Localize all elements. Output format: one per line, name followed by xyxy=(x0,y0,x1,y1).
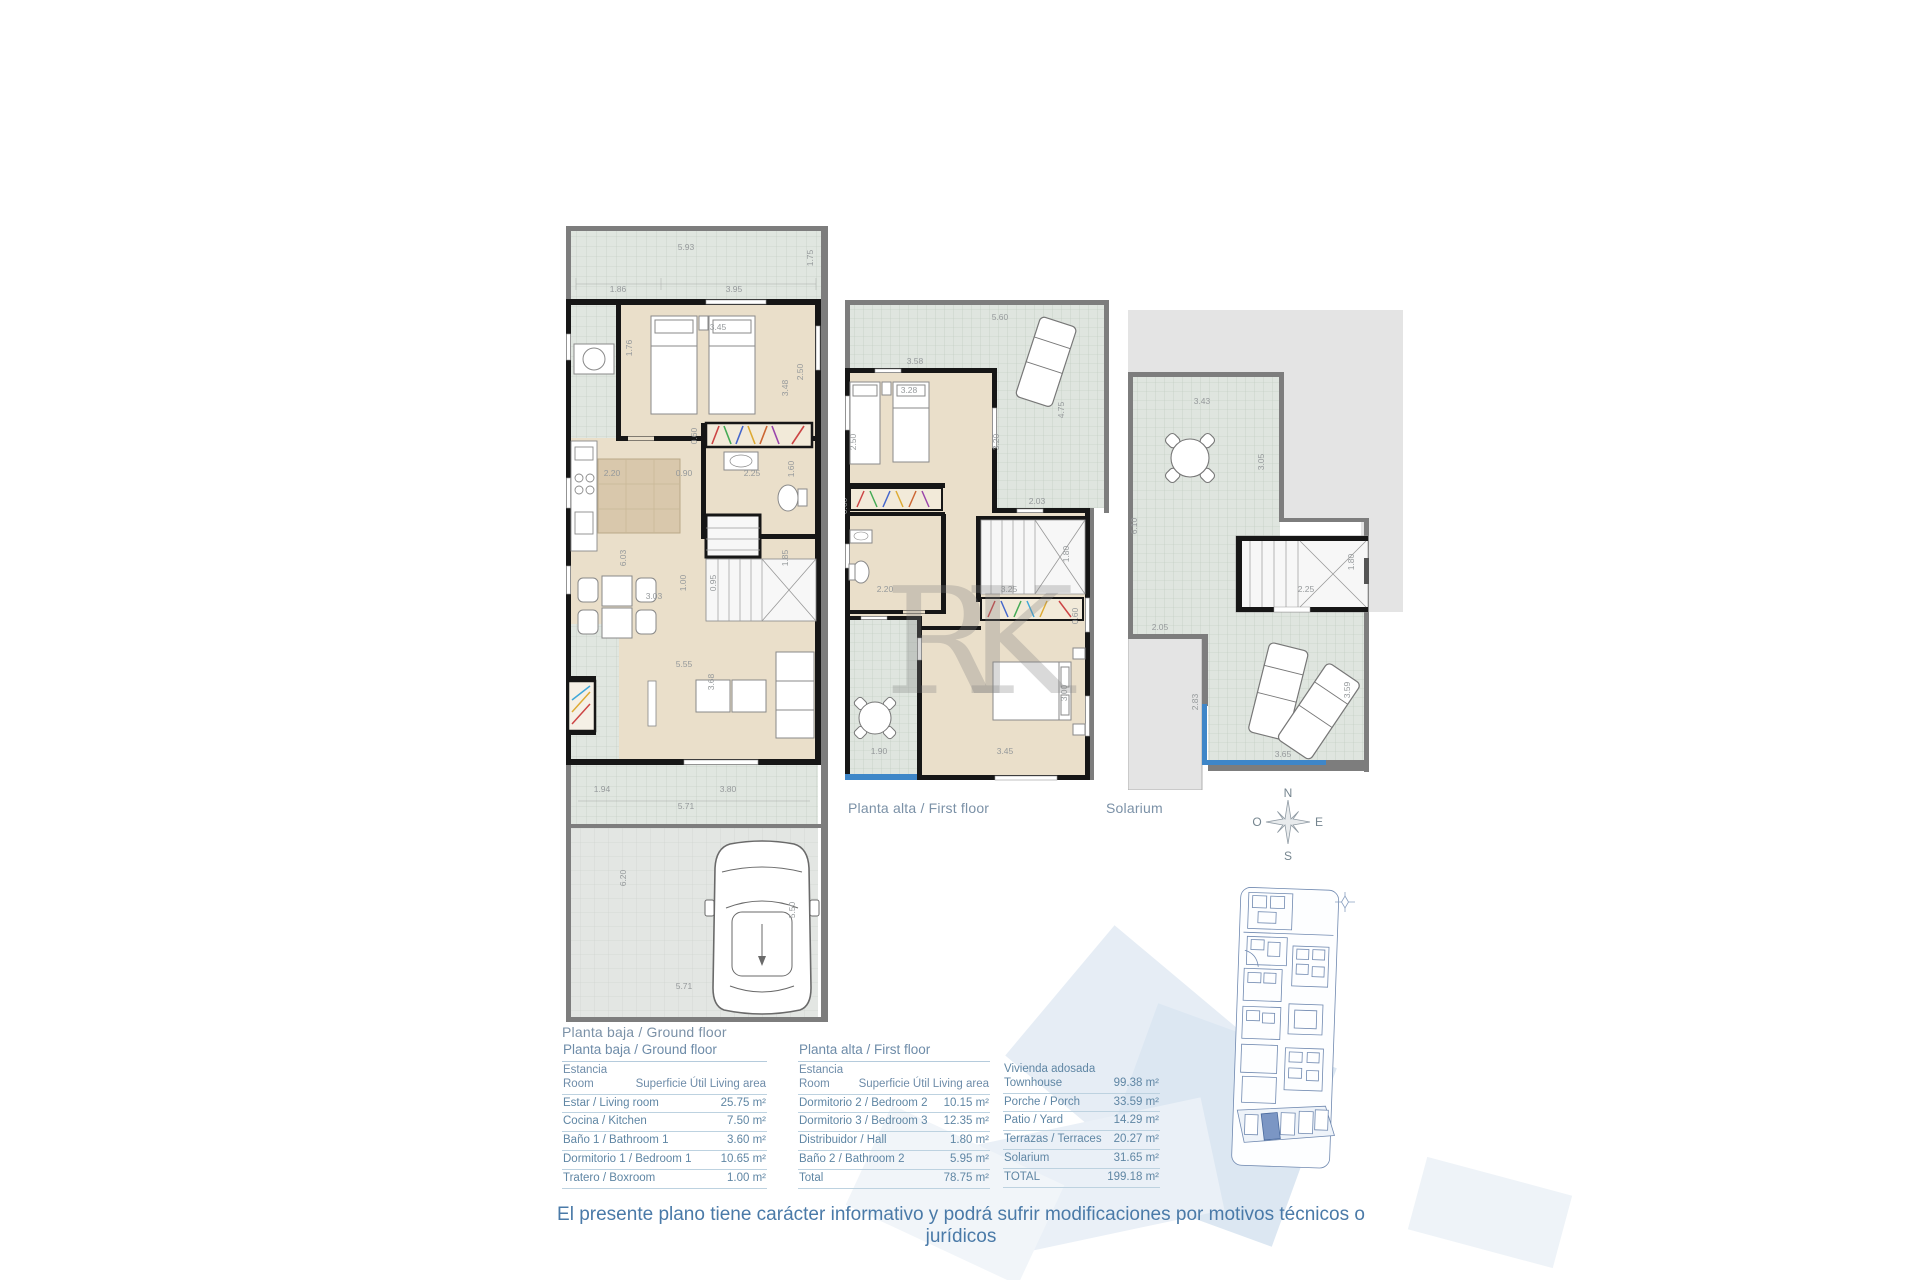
disclaimer-text: El presente plano tiene carácter informa… xyxy=(553,1204,1369,1248)
dimension-label: 1.80 xyxy=(1061,545,1071,562)
first-floor-plan: 5.603.584.753.282.503.200.602.032.203.25… xyxy=(845,300,1113,790)
dimension-label: 5.50 xyxy=(787,901,797,918)
header-room: Estancia Room xyxy=(563,1064,607,1092)
table-row: Distribuidor / Hall1.80 m² xyxy=(798,1132,990,1151)
table-row: Tratero / Boxroom1.00 m² xyxy=(562,1170,767,1189)
row-label: Solarium xyxy=(1004,1152,1049,1166)
row-label: Estar / Living room xyxy=(563,1097,659,1111)
table-row: Total78.75 m² xyxy=(798,1170,990,1189)
dimension-label: 5.93 xyxy=(678,242,695,252)
dimension-label: 6.10 xyxy=(1129,517,1139,534)
table-row: Vivienda adosada Townhouse99.38 m² xyxy=(1003,1061,1160,1094)
dimension-label: 0.60 xyxy=(1070,607,1080,624)
header-area: Superficie Útil Living area xyxy=(859,1078,989,1092)
table-title: Planta baja / Ground floor xyxy=(562,1042,767,1062)
wardrobe xyxy=(850,488,942,510)
row-value: 99.38 m² xyxy=(1114,1077,1159,1091)
dimension-label: 1.75 xyxy=(805,249,815,266)
dimension-label: 1.00 xyxy=(678,574,688,591)
dimension-label: 6.03 xyxy=(618,549,628,566)
row-label: Patio / Yard xyxy=(1004,1114,1063,1128)
porch-area xyxy=(570,230,822,302)
site-plan xyxy=(1228,886,1358,1181)
table-row: Baño 1 / Bathroom 13.60 m² xyxy=(562,1132,767,1151)
compass-north: N xyxy=(1284,788,1293,800)
row-value: 1.80 m² xyxy=(950,1134,989,1148)
dimension-label: 5.60 xyxy=(992,312,1009,322)
wardrobe xyxy=(981,598,1083,620)
dimension-label: 3.45 xyxy=(710,322,727,332)
car-icon xyxy=(705,841,819,1014)
table-row: Baño 2 / Bathroom 25.95 m² xyxy=(798,1151,990,1170)
stairs xyxy=(1236,536,1368,612)
row-label: Tratero / Boxroom xyxy=(563,1172,655,1186)
dimension-label: 0.60 xyxy=(845,497,849,514)
round-table-icon xyxy=(853,696,897,740)
row-label: Terrazas / Terraces xyxy=(1004,1133,1102,1147)
row-value: 1.00 m² xyxy=(727,1172,766,1186)
header-area: Superficie Útil Living area xyxy=(636,1078,766,1092)
row-value: 14.29 m² xyxy=(1114,1114,1159,1128)
dimension-label: 3.48 xyxy=(780,379,790,396)
row-value: 199.18 m² xyxy=(1107,1171,1159,1185)
dimension-label: 2.20 xyxy=(604,468,621,478)
table-header: Estancia RoomSuperficie Útil Living area xyxy=(562,1062,767,1095)
dimension-label: 3.28 xyxy=(901,385,918,395)
dimension-label: 3.95 xyxy=(726,284,743,294)
row-value: 3.60 m² xyxy=(727,1134,766,1148)
caption-solarium: Solarium xyxy=(1106,800,1163,816)
dimension-label: 2.25 xyxy=(744,468,761,478)
row-label: Vivienda adosada Townhouse xyxy=(1004,1063,1095,1091)
watermark-shape xyxy=(1408,1157,1572,1268)
table-row: Terrazas / Terraces20.27 m² xyxy=(1003,1131,1160,1150)
dimension-label: 3.80 xyxy=(720,784,737,794)
row-value: 78.75 m² xyxy=(944,1172,989,1186)
dimension-label: 3.20 xyxy=(991,433,1001,450)
dimension-label: 2.50 xyxy=(795,363,805,380)
caption-first-floor: Planta alta / First floor xyxy=(848,800,989,816)
table-row: TOTAL199.18 m² xyxy=(1003,1169,1160,1188)
wardrobe xyxy=(706,423,812,447)
row-label: Total xyxy=(799,1172,823,1186)
dimension-label: 2.83 xyxy=(1190,693,1200,710)
dimension-label: 1.76 xyxy=(624,339,634,356)
dimension-label: 2.05 xyxy=(1152,622,1169,632)
row-value: 12.35 m² xyxy=(944,1115,989,1129)
dimension-label: 0.60 xyxy=(689,427,699,444)
row-value: 31.65 m² xyxy=(1114,1152,1159,1166)
dimension-label: 3.00 xyxy=(1059,684,1069,701)
dimension-label: 0.90 xyxy=(676,468,693,478)
dimension-label: 3.43 xyxy=(1194,396,1211,406)
dimension-label: 3.25 xyxy=(1001,584,1018,594)
compass-south: S xyxy=(1284,849,1292,863)
dimension-label: 2.50 xyxy=(848,433,858,450)
caption-ground-floor: Planta baja / Ground floor xyxy=(562,1024,727,1040)
patio-area xyxy=(570,764,818,826)
table-title xyxy=(1003,1042,1160,1061)
glass-balustrade xyxy=(845,774,917,780)
area-table-first: Planta alta / First floorEstancia RoomSu… xyxy=(798,1042,990,1189)
ground-floor-plan: 5.931.751.863.953.452.503.481.760.602.20… xyxy=(566,226,831,1026)
header-room: Estancia Room xyxy=(799,1064,843,1092)
row-value: 5.95 m² xyxy=(950,1153,989,1167)
row-label: Porche / Porch xyxy=(1004,1096,1080,1110)
table-row: Dormitorio 1 / Bedroom 110.65 m² xyxy=(562,1151,767,1170)
dimension-label: 2.25 xyxy=(1298,584,1315,594)
row-value: 10.15 m² xyxy=(944,1097,989,1111)
dimension-label: 3.65 xyxy=(1275,749,1292,759)
dimension-label: 2.03 xyxy=(1029,496,1046,506)
table-row: Dormitorio 3 / Bedroom 312.35 m² xyxy=(798,1113,990,1132)
row-value: 10.65 m² xyxy=(721,1153,766,1167)
table-row: Cocina / Kitchen7.50 m² xyxy=(562,1113,767,1132)
dimension-label: 3.68 xyxy=(706,673,716,690)
row-value: 25.75 m² xyxy=(721,1097,766,1111)
dimension-label: 3.03 xyxy=(646,591,663,601)
row-value: 7.50 m² xyxy=(727,1115,766,1129)
dimension-label: 3.58 xyxy=(907,356,924,366)
row-label: Dormitorio 3 / Bedroom 3 xyxy=(799,1115,927,1129)
door xyxy=(1364,558,1369,584)
dimension-label: 5.71 xyxy=(676,981,693,991)
table-row: Dormitorio 2 / Bedroom 210.15 m² xyxy=(798,1095,990,1114)
table-row: Solarium31.65 m² xyxy=(1003,1150,1160,1169)
row-label: Dormitorio 1 / Bedroom 1 xyxy=(563,1153,691,1167)
roof-area xyxy=(1128,638,1202,790)
row-label: Baño 2 / Bathroom 2 xyxy=(799,1153,904,1167)
table-header: Estancia RoomSuperficie Útil Living area xyxy=(798,1062,990,1095)
dimension-label: 4.75 xyxy=(1056,401,1066,418)
area-table-totals: Vivienda adosada Townhouse99.38 m²Porche… xyxy=(1003,1042,1160,1188)
round-table-icon xyxy=(1164,432,1216,484)
table-row: Estar / Living room25.75 m² xyxy=(562,1095,767,1114)
roof-area xyxy=(1284,376,1364,520)
row-label: Baño 1 / Bathroom 1 xyxy=(563,1134,668,1148)
row-value: 20.27 m² xyxy=(1114,1133,1159,1147)
kitchen-counter xyxy=(571,441,597,551)
boxroom xyxy=(568,681,595,731)
dimension-label: 1.60 xyxy=(786,460,796,477)
table-title: Planta alta / First floor xyxy=(798,1042,990,1062)
dimension-label: 2.20 xyxy=(877,584,894,594)
solarium-plan: 3.433.056.102.251.802.052.833.593.65 xyxy=(1128,310,1403,790)
dimension-label: 1.80 xyxy=(1346,553,1356,570)
dimension-label: 3.05 xyxy=(1256,453,1266,470)
dimension-label: 3.45 xyxy=(997,746,1014,756)
dimension-label: 3.59 xyxy=(1342,681,1352,698)
area-table-ground: Planta baja / Ground floorEstancia RoomS… xyxy=(562,1042,767,1189)
dimension-label: 1.90 xyxy=(871,746,888,756)
row-label: Distribuidor / Hall xyxy=(799,1134,887,1148)
row-label: Dormitorio 2 / Bedroom 2 xyxy=(799,1097,927,1111)
dimension-label: 0.95 xyxy=(708,574,718,591)
dimension-label: 5.71 xyxy=(678,801,695,811)
dimension-label: 1.85 xyxy=(780,549,790,566)
floorplan-page: 5.931.751.863.953.452.503.481.760.602.20… xyxy=(0,0,1920,1280)
dimension-label: 5.55 xyxy=(676,659,693,669)
row-label: TOTAL xyxy=(1004,1171,1040,1185)
dimension-label: 6.20 xyxy=(618,869,628,886)
table-row: Patio / Yard14.29 m² xyxy=(1003,1112,1160,1131)
dimension-label: 1.86 xyxy=(610,284,627,294)
table-row: Porche / Porch33.59 m² xyxy=(1003,1094,1160,1113)
dimension-label: 1.94 xyxy=(594,784,611,794)
row-label: Cocina / Kitchen xyxy=(563,1115,647,1129)
compass-west: O xyxy=(1252,815,1261,829)
row-value: 33.59 m² xyxy=(1114,1096,1159,1110)
boiler-icon xyxy=(574,344,614,374)
compass-east: E xyxy=(1315,815,1323,829)
compass-rose: N S O E xyxy=(1248,788,1328,868)
compass-star-icon xyxy=(1266,800,1310,844)
